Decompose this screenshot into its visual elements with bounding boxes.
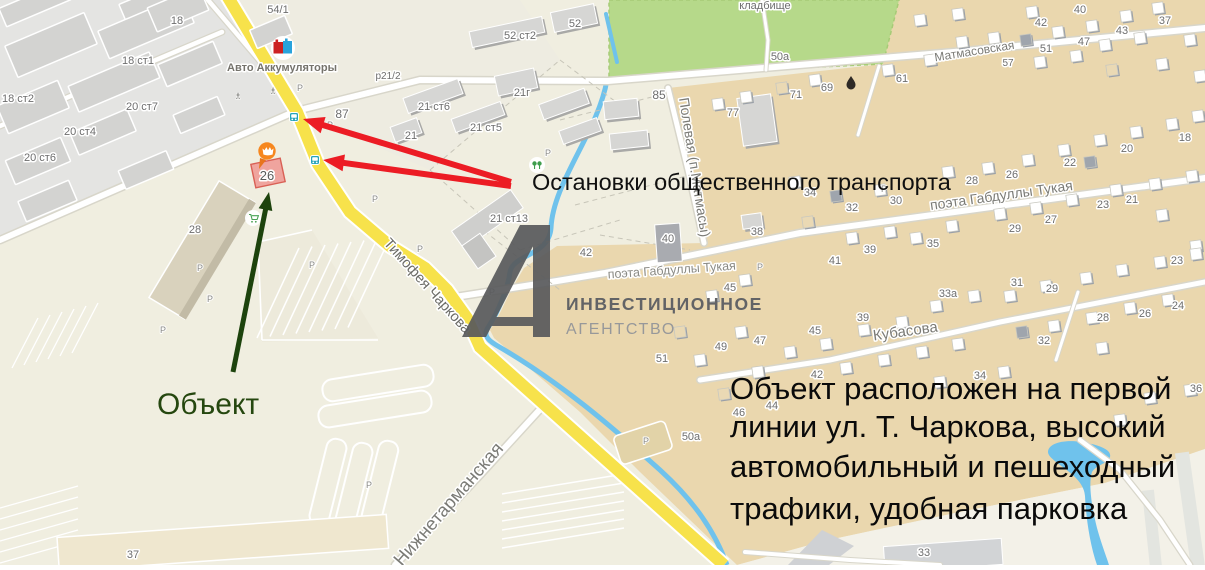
svg-text:АГЕНТСТВО: АГЕНТСТВО [566,321,676,338]
svg-text:27: 27 [1045,214,1057,226]
svg-text:51: 51 [656,353,668,365]
svg-text:20 ст7: 20 ст7 [126,101,158,113]
svg-text:57: 57 [1002,58,1014,69]
svg-text:40: 40 [1074,4,1086,16]
svg-text:21 ст6: 21 ст6 [418,101,450,113]
svg-text:36: 36 [1190,383,1202,395]
svg-text:47: 47 [754,335,766,347]
svg-text:18 ст2: 18 ст2 [2,93,34,105]
svg-text:P: P [372,194,378,204]
svg-text:39: 39 [864,244,876,256]
svg-text:Авто Аккумуляторы: Авто Аккумуляторы [227,62,337,74]
svg-text:26: 26 [1006,169,1018,181]
svg-text:32: 32 [1038,335,1050,347]
svg-text:Объект: Объект [157,388,259,421]
svg-text:45: 45 [809,325,821,337]
svg-text:P: P [643,436,649,446]
svg-text:23: 23 [1171,255,1183,267]
svg-text:P: P [207,294,213,304]
svg-text:20 ст6: 20 ст6 [24,152,56,164]
svg-text:39: 39 [857,312,869,324]
svg-text:29: 29 [1046,283,1058,295]
svg-text:26: 26 [1139,308,1151,320]
svg-text:28: 28 [189,224,201,236]
svg-text:40: 40 [662,233,674,245]
svg-text:21г: 21г [514,87,530,99]
svg-text:37: 37 [127,549,139,561]
svg-text:18 ст1: 18 ст1 [122,55,154,67]
svg-text:69: 69 [821,82,833,94]
svg-text:21: 21 [1126,194,1138,206]
svg-text:26: 26 [260,168,274,183]
svg-text:54/1: 54/1 [267,4,288,16]
svg-text:51: 51 [1040,43,1052,55]
svg-text:P: P [757,262,763,272]
svg-text:ИНВЕСТИЦИОННОЕ: ИНВЕСТИЦИОННОЕ [566,294,763,314]
svg-text:71: 71 [790,89,802,101]
svg-text:♗: ♗ [234,91,242,101]
svg-text:P: P [160,325,166,335]
svg-text:автомобильный и пешеходный: автомобильный и пешеходный [730,449,1175,484]
svg-text:77: 77 [727,107,739,119]
svg-text:41: 41 [829,255,841,267]
svg-text:31: 31 [1011,277,1023,289]
svg-text:P: P [366,480,372,490]
svg-text:P: P [417,244,423,254]
svg-text:52 ст2: 52 ст2 [504,30,536,42]
svg-text:P: P [545,148,551,158]
svg-text:Объект расположен на первой: Объект расположен на первой [730,371,1171,406]
svg-text:P: P [197,263,203,273]
svg-text:87: 87 [335,107,349,121]
svg-text:линии ул. Т. Чаркова, высокий: линии ул. Т. Чаркова, высокий [730,409,1166,444]
svg-text:24: 24 [1172,300,1184,312]
svg-text:Остановки общественного трансп: Остановки общественного транспорта [532,169,952,195]
svg-text:кладбище: кладбище [739,0,790,12]
svg-text:42: 42 [580,247,592,259]
svg-text:28: 28 [966,175,978,187]
svg-text:P: P [297,83,303,93]
svg-text:43: 43 [1116,25,1128,37]
svg-text:50a: 50a [682,431,701,443]
svg-text:85: 85 [652,88,666,102]
svg-text:21 ст5: 21 ст5 [470,122,502,134]
svg-text:18: 18 [171,15,183,27]
svg-text:р21/2: р21/2 [375,71,400,82]
svg-text:61: 61 [896,73,908,85]
svg-text:50а: 50а [771,51,790,63]
svg-text:35: 35 [927,238,939,250]
svg-text:37: 37 [1159,15,1171,27]
svg-text:33: 33 [918,547,930,559]
svg-text:20 ст4: 20 ст4 [64,126,96,138]
svg-text:22: 22 [1064,157,1076,169]
svg-text:30: 30 [890,195,902,207]
svg-text:трафики, удобная парковка: трафики, удобная парковка [730,491,1128,526]
svg-text:21 ст13: 21 ст13 [490,213,528,225]
svg-text:28: 28 [1097,312,1109,324]
svg-text:23: 23 [1097,199,1109,211]
svg-text:P: P [309,260,315,270]
svg-text:47: 47 [1078,36,1090,48]
svg-text:45: 45 [724,282,736,294]
svg-text:32: 32 [846,202,858,214]
svg-text:21: 21 [405,130,417,142]
svg-text:38: 38 [751,226,763,238]
svg-text:29: 29 [1009,223,1021,235]
svg-text:52: 52 [569,18,581,30]
svg-text:18: 18 [1179,132,1191,144]
svg-text:42: 42 [1035,17,1047,29]
svg-text:♗: ♗ [269,86,277,96]
svg-text:49: 49 [715,341,727,353]
svg-text:20: 20 [1121,143,1133,155]
svg-text:33а: 33а [939,288,958,300]
